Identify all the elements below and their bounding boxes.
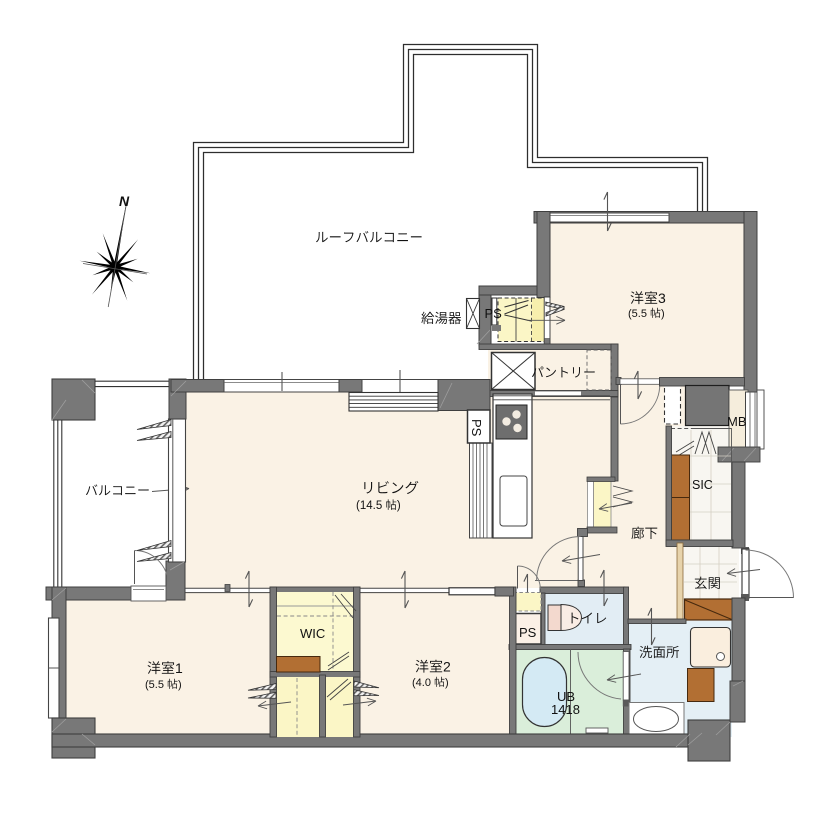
svg-text:WIC: WIC: [300, 626, 325, 641]
svg-text:1418: 1418: [551, 702, 580, 717]
svg-text:1: 1: [175, 660, 183, 676]
svg-text:): ): [661, 308, 665, 320]
svg-text:(4.0: (4.0: [412, 677, 431, 689]
svg-text:N: N: [119, 193, 130, 209]
svg-text:PS: PS: [519, 625, 537, 640]
svg-text:MB: MB: [727, 414, 747, 429]
svg-text:3: 3: [658, 290, 666, 306]
svg-text:): ): [397, 500, 401, 512]
svg-text:(5.5: (5.5: [145, 679, 164, 691]
svg-text:PS: PS: [485, 306, 503, 321]
svg-text:(5.5: (5.5: [628, 308, 647, 320]
svg-text:2: 2: [443, 659, 451, 675]
svg-text:SIC: SIC: [692, 478, 713, 492]
svg-text:(14.5: (14.5: [356, 500, 382, 512]
svg-text:): ): [445, 677, 449, 689]
svg-text:PS: PS: [469, 419, 484, 437]
svg-text:): ): [178, 679, 182, 691]
